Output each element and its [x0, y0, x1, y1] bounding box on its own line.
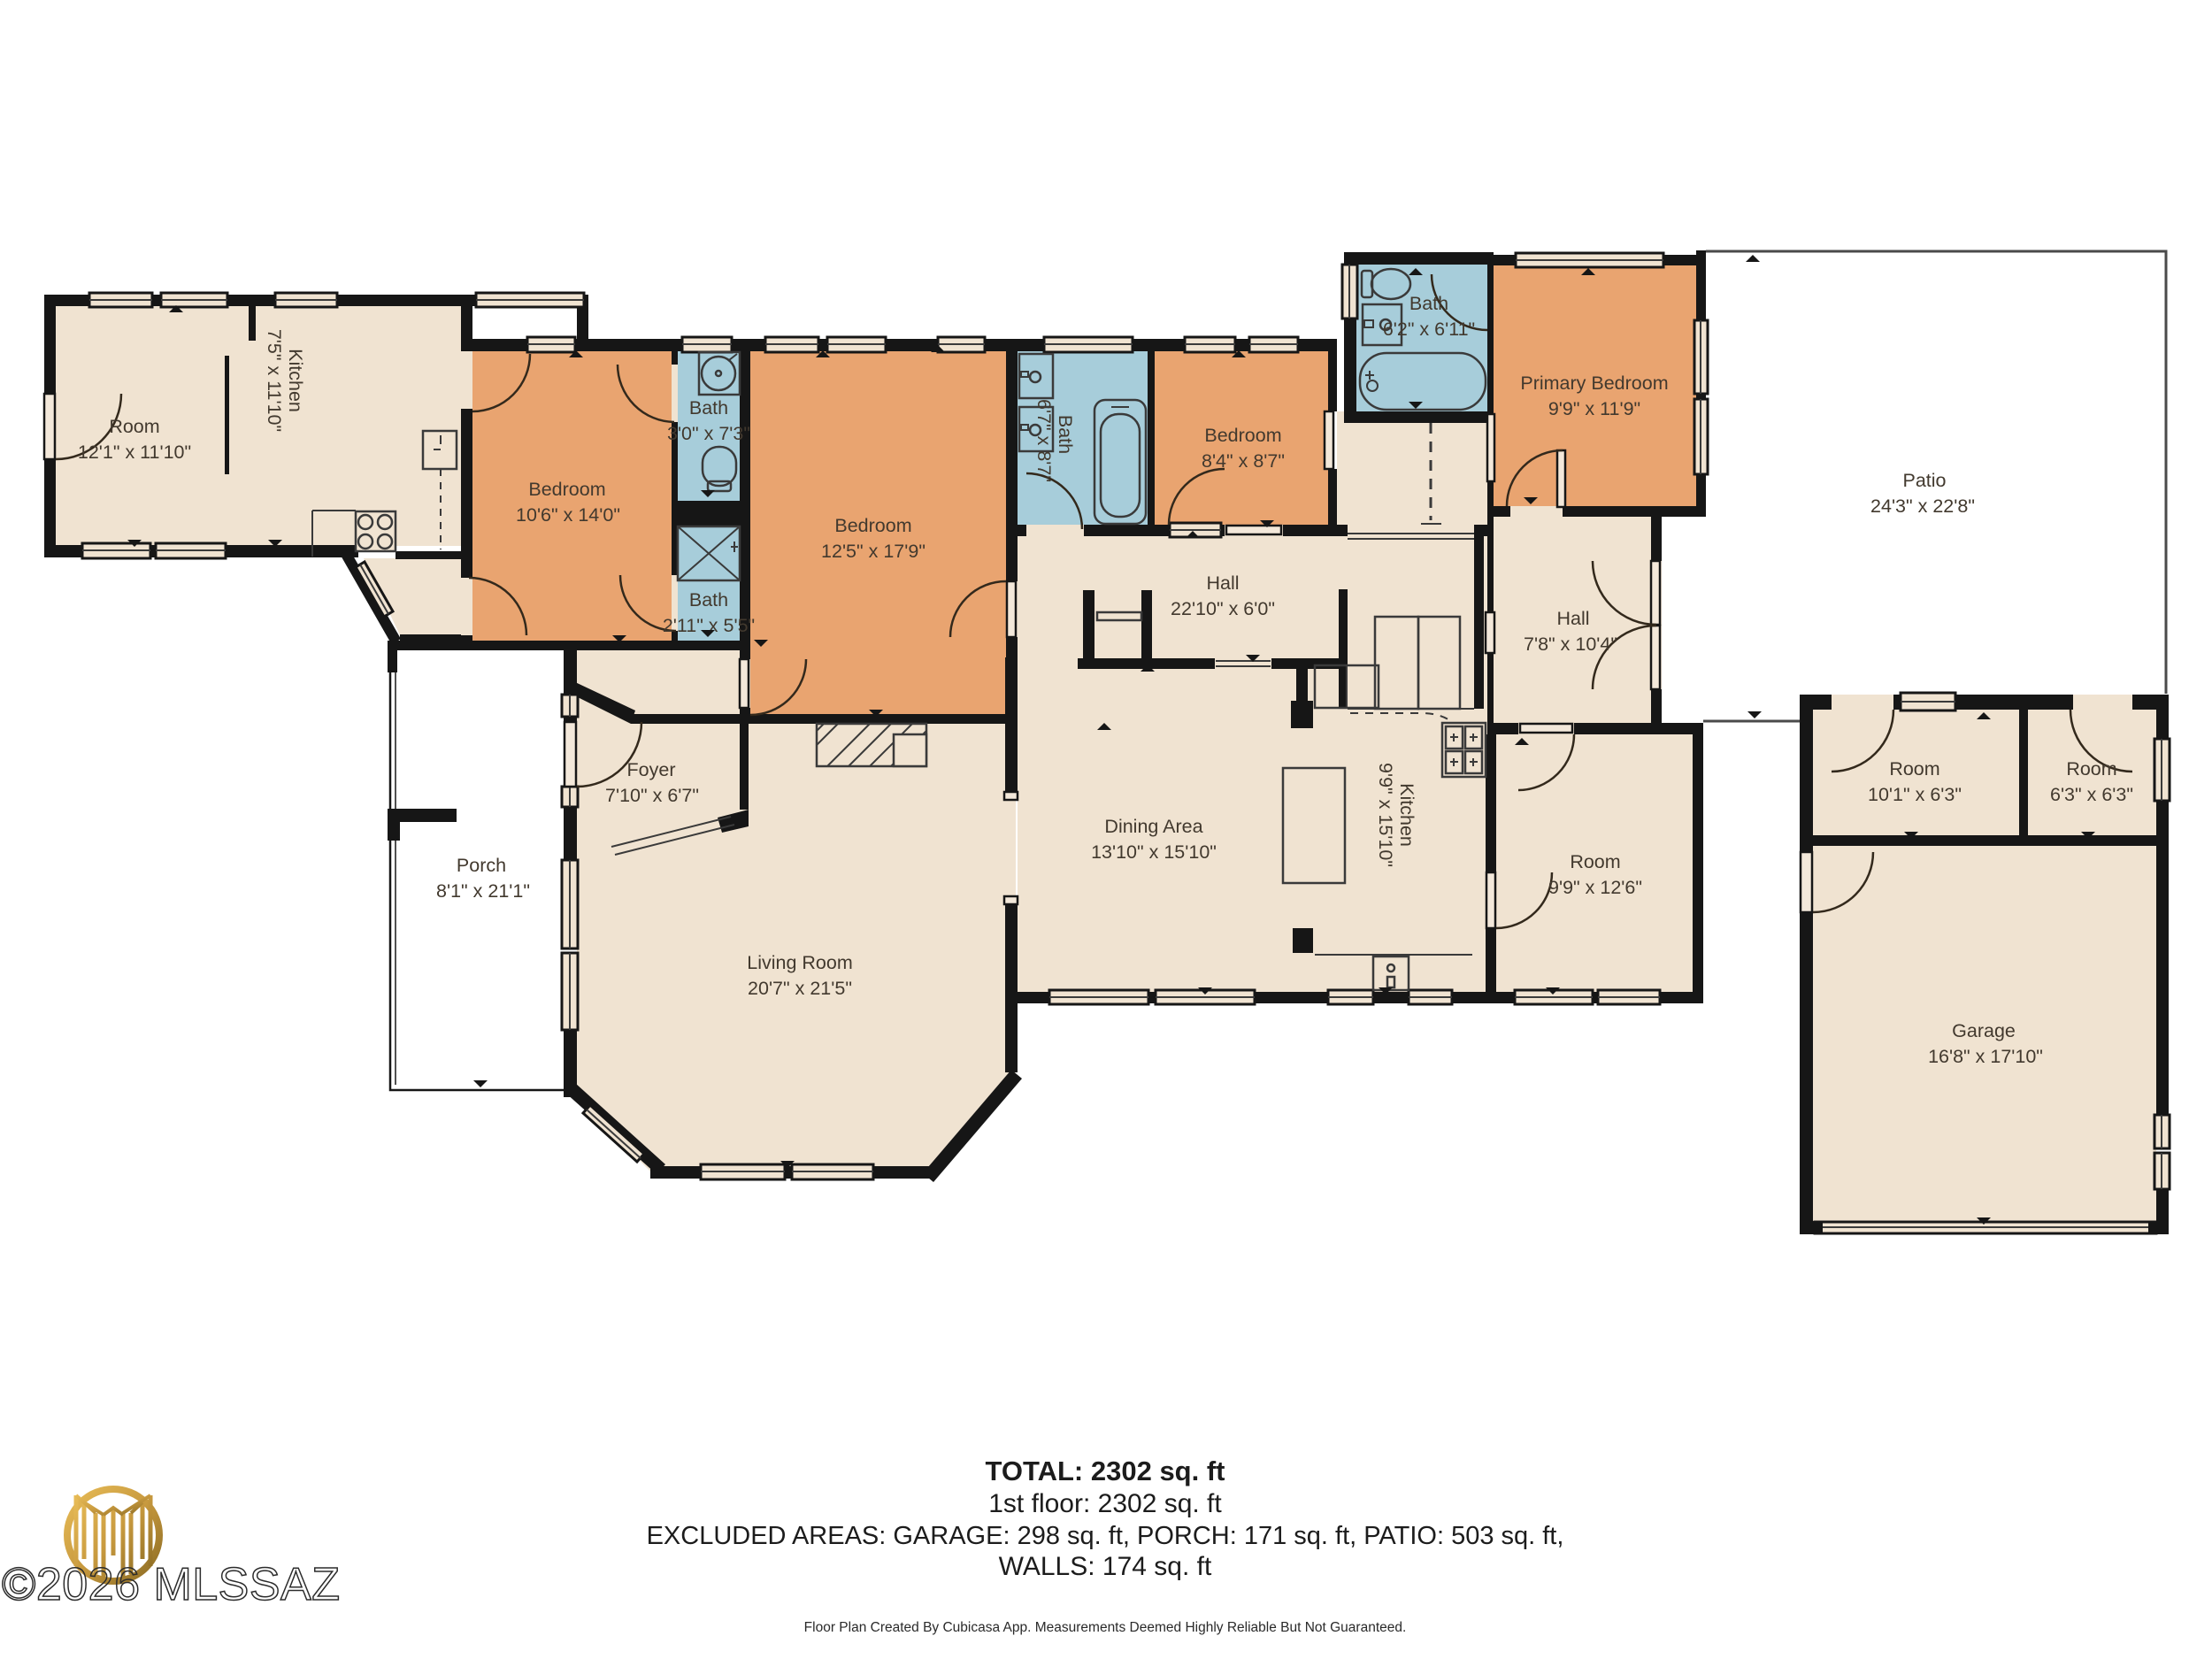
svg-text:12'1" x 11'10": 12'1" x 11'10" [78, 442, 191, 463]
svg-text:6'7" x 8'7": 6'7" x 8'7" [1033, 399, 1055, 482]
svg-text:Bedroom: Bedroom [834, 515, 911, 536]
svg-text:20'7" x 21'5": 20'7" x 21'5" [748, 978, 852, 999]
svg-text:EXCLUDED AREAS: GARAGE: 298 sq: EXCLUDED AREAS: GARAGE: 298 sq. ft, PORC… [647, 1522, 1564, 1550]
svg-text:3'0" x 7'3": 3'0" x 7'3" [667, 423, 750, 444]
svg-text:Hall: Hall [1206, 572, 1239, 594]
svg-text:Bedroom: Bedroom [528, 479, 605, 500]
svg-text:6'3" x 6'3": 6'3" x 6'3" [2050, 784, 2133, 805]
svg-text:Patio: Patio [1902, 470, 1946, 491]
svg-text:Bath: Bath [689, 589, 728, 611]
svg-text:10'1" x 6'3": 10'1" x 6'3" [1868, 784, 1962, 805]
svg-text:Garage: Garage [1952, 1020, 2016, 1041]
svg-text:1st floor: 2302 sq. ft: 1st floor: 2302 sq. ft [988, 1489, 1222, 1518]
svg-text:Bath: Bath [1409, 293, 1448, 314]
svg-text:Primary Bedroom: Primary Bedroom [1520, 373, 1668, 394]
svg-text:TOTAL: 2302 sq. ft: TOTAL: 2302 sq. ft [985, 1455, 1225, 1486]
svg-text:Floor Plan Created By Cubicasa: Floor Plan Created By Cubicasa App. Meas… [804, 1620, 1407, 1635]
svg-text:13'10" x 15'10": 13'10" x 15'10" [1091, 841, 1217, 863]
svg-text:Foyer: Foyer [627, 759, 676, 780]
svg-text:Bedroom: Bedroom [1204, 425, 1281, 446]
svg-text:Dining Area: Dining Area [1104, 816, 1202, 837]
svg-text:9'9" x 12'6": 9'9" x 12'6" [1548, 877, 1642, 898]
svg-text:9'9" x 15'10": 9'9" x 15'10" [1375, 763, 1396, 867]
svg-text:6'2" x 6'11": 6'2" x 6'11" [1383, 319, 1475, 340]
svg-text:©2026 MLSSAZ: ©2026 MLSSAZ [2, 1559, 341, 1610]
svg-text:Room: Room [2066, 758, 2116, 780]
svg-text:Living Room: Living Room [747, 952, 853, 973]
svg-text:Porch: Porch [457, 855, 506, 876]
svg-text:12'5" x 17'9": 12'5" x 17'9" [821, 541, 926, 562]
svg-text:22'10" x 6'0": 22'10" x 6'0" [1171, 598, 1275, 619]
svg-text:Kitchen: Kitchen [1396, 783, 1417, 847]
svg-text:7'5" x 11'10": 7'5" x 11'10" [264, 329, 285, 432]
svg-text:Hall: Hall [1556, 608, 1589, 629]
svg-text:7'8" x 10'4": 7'8" x 10'4" [1524, 634, 1617, 655]
svg-text:Room: Room [109, 416, 159, 437]
svg-text:Room: Room [1570, 851, 1620, 872]
svg-text:9'9" x 11'9": 9'9" x 11'9" [1548, 398, 1640, 419]
svg-text:Room: Room [1889, 758, 1939, 780]
svg-text:Kitchen: Kitchen [285, 349, 306, 412]
svg-text:16'8" x 17'10": 16'8" x 17'10" [1928, 1046, 2043, 1067]
svg-text:24'3" x 22'8": 24'3" x 22'8" [1870, 495, 1975, 517]
svg-text:8'4" x 8'7": 8'4" x 8'7" [1202, 450, 1285, 472]
svg-text:WALLS: 174 sq. ft: WALLS: 174 sq. ft [999, 1552, 1212, 1581]
svg-text:8'1" x 21'1": 8'1" x 21'1" [436, 880, 530, 902]
svg-text:Bath: Bath [1055, 415, 1076, 454]
svg-text:10'6" x 14'0": 10'6" x 14'0" [516, 504, 620, 526]
svg-text:7'10" x 6'7": 7'10" x 6'7" [605, 785, 699, 806]
svg-text:Bath: Bath [689, 397, 728, 419]
